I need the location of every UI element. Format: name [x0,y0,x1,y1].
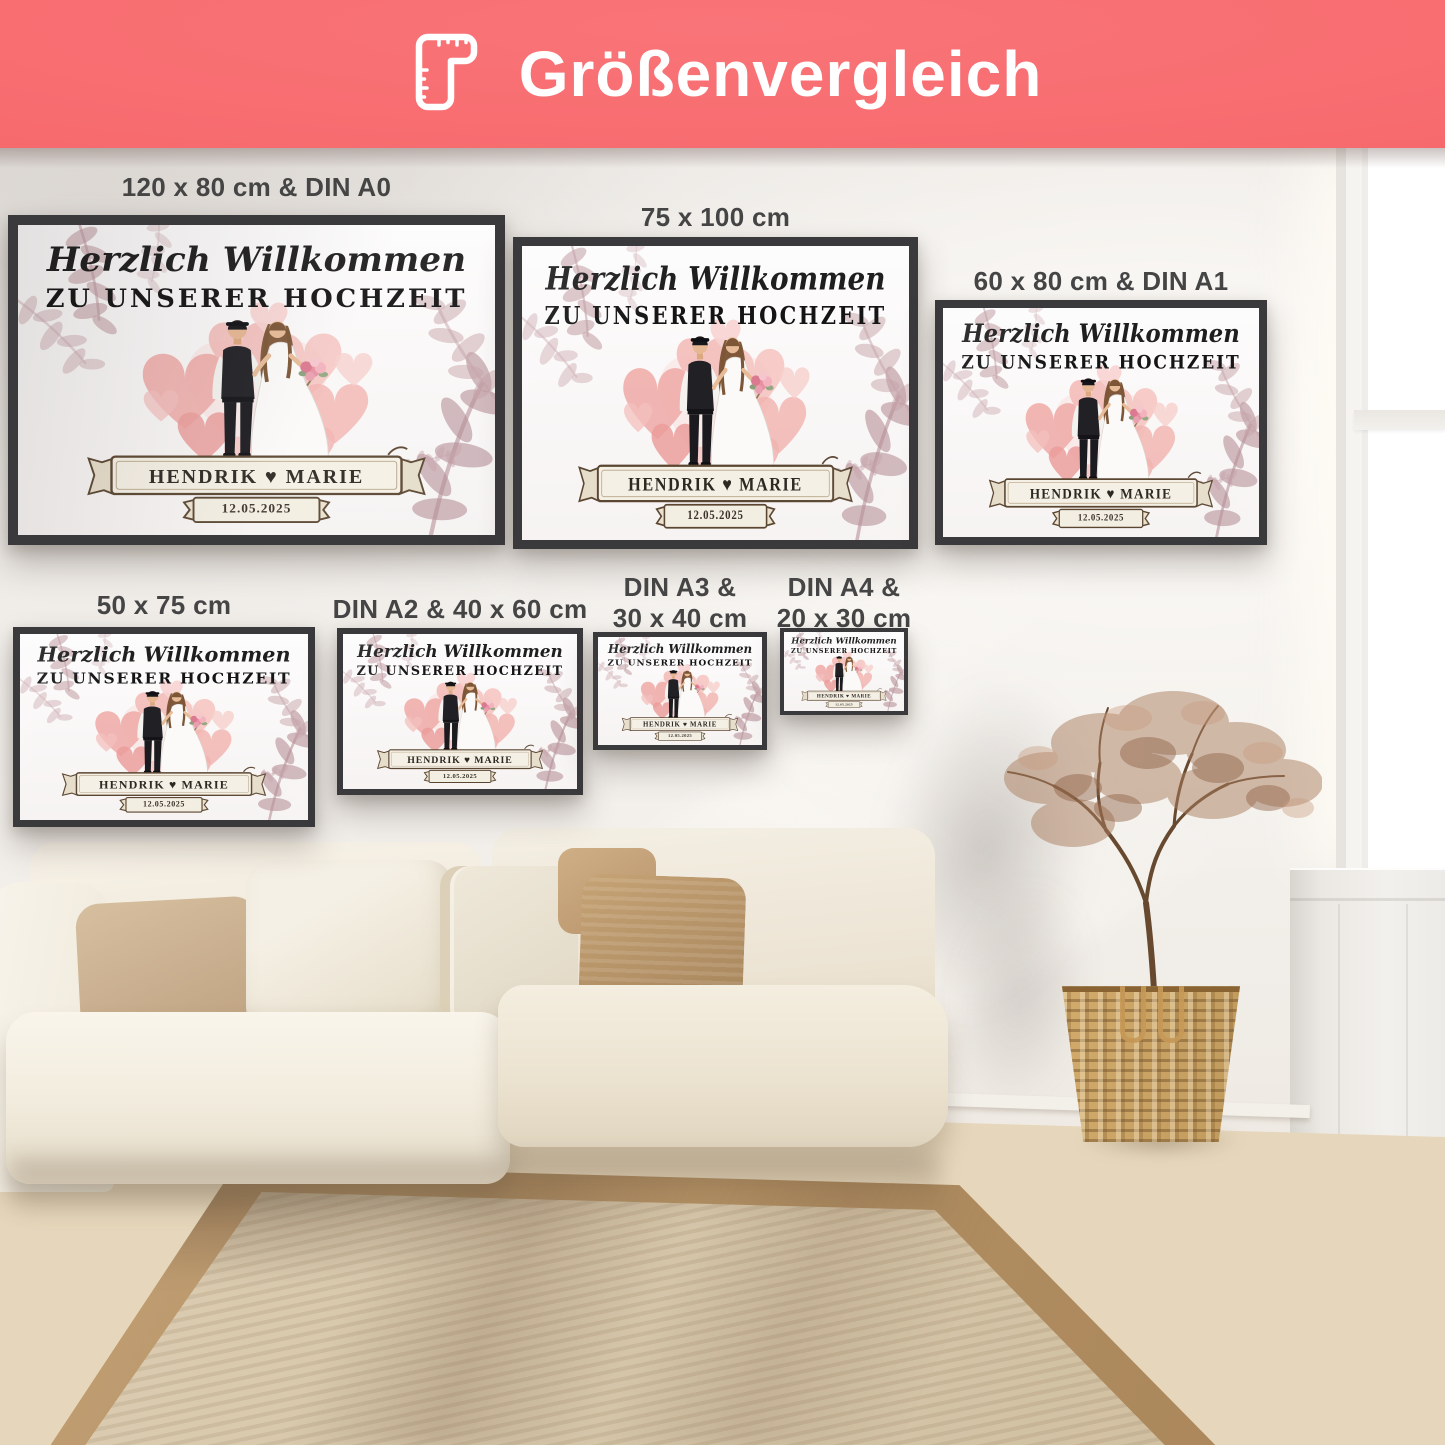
poster-size-label-line: 120 x 80 cm & DIN A0 [122,172,392,203]
poster-frame: Herzlich Willkommen ZU UNSERER HOCHZEIT … [8,215,505,545]
poster-frame: Herzlich Willkommen ZU UNSERER HOCHZEIT … [513,237,918,549]
poster-size-label-line: DIN A3 & [613,572,748,603]
poster-date: 12.05.2025 [192,499,322,521]
wicker-basket [1062,978,1240,1142]
poster-names: HENDRIK ♥ MARIE [118,459,395,493]
poster-main-title: ZU UNSERER HOCHZEIT [20,670,308,687]
window [1336,148,1445,872]
wedding-poster-art: Herzlich Willkommen ZU UNSERER HOCHZEIT … [784,632,904,711]
poster-script-title: Herzlich Willkommen [18,240,495,279]
page-title: Größenvergleich [519,37,1043,111]
poster-script-title: Herzlich Willkommen [20,643,308,667]
poster-frame: Herzlich Willkommen ZU UNSERER HOCHZEIT … [593,632,767,750]
wedding-poster-art: Herzlich Willkommen ZU UNSERER HOCHZEIT … [522,246,909,540]
poster-size-label: 120 x 80 cm & DIN A0 [122,172,392,203]
poster-frame: Herzlich Willkommen ZU UNSERER HOCHZEIT … [337,628,583,795]
poster-main-title: ZU UNSERER HOCHZEIT [598,658,762,668]
poster-size-label-line: 30 x 40 cm [613,603,748,634]
poster-script-title: Herzlich Willkommen [598,642,762,656]
ruler-icon [403,28,491,116]
poster-size-label: 60 x 80 cm & DIN A1 [974,266,1229,297]
poster-date: 12.05.2025 [1058,510,1144,527]
poster-names: HENDRIK ♥ MARIE [603,468,827,500]
poster-names: HENDRIK ♥ MARIE [392,751,528,768]
poster-script-title: Herzlich Willkommen [784,636,904,646]
poster-date: 12.05.2025 [428,771,492,782]
poster-size-label-line: DIN A4 & [777,572,912,603]
wedding-poster-art: Herzlich Willkommen ZU UNSERER HOCHZEIT … [343,634,577,789]
poster-size-label: DIN A2 & 40 x 60 cm [333,594,588,625]
poster-size-label: 75 x 100 cm [641,202,790,233]
poster-script-title: Herzlich Willkommen [522,260,909,297]
poster-names: HENDRIK ♥ MARIE [632,719,727,731]
poster-size-label-line: 50 x 75 cm [97,590,232,621]
poster-date: 12.05.2025 [125,798,203,811]
banner-shadow [0,148,1445,168]
poster-main-title: ZU UNSERER HOCHZEIT [522,303,909,330]
poster-size-label: DIN A4 &20 x 30 cm [777,572,912,634]
poster-date: 12.05.2025 [828,702,861,708]
dried-plant [978,658,1322,992]
wedding-poster-art: Herzlich Willkommen ZU UNSERER HOCHZEIT … [18,225,495,535]
poster-script-title: Herzlich Willkommen [343,641,577,661]
poster-frame: Herzlich Willkommen ZU UNSERER HOCHZEIT … [780,628,908,715]
poster-frame: Herzlich Willkommen ZU UNSERER HOCHZEIT … [13,627,315,827]
poster-size-label: DIN A3 &30 x 40 cm [613,572,748,634]
wedding-poster-art: Herzlich Willkommen ZU UNSERER HOCHZEIT … [943,308,1259,537]
window-frame [1362,148,1368,872]
poster-frame: Herzlich Willkommen ZU UNSERER HOCHZEIT … [935,300,1267,545]
sofa-seat-cushion [498,985,948,1147]
poster-names: HENDRIK ♥ MARIE [80,775,247,795]
poster-main-title: ZU UNSERER HOCHZEIT [784,647,904,654]
poster-names: HENDRIK ♥ MARIE [809,692,879,701]
wedding-poster-art: Herzlich Willkommen ZU UNSERER HOCHZEIT … [598,637,762,745]
pillow [246,860,454,1034]
poster-main-title: ZU UNSERER HOCHZEIT [943,352,1259,373]
poster-size-label-line: 75 x 100 cm [641,202,790,233]
poster-main-title: ZU UNSERER HOCHZEIT [18,285,495,314]
sofa-shadow [10,1158,940,1214]
poster-script-title: Herzlich Willkommen [943,319,1259,348]
room-scene: Größenvergleich 120 x 80 cm & DIN A0 [0,0,1445,1445]
poster-size-label: 50 x 75 cm [97,590,232,621]
poster-date: 12.05.2025 [658,732,703,740]
sofa [0,820,960,1200]
poster-size-label-line: DIN A2 & 40 x 60 cm [333,594,588,625]
window-mullion [1354,410,1445,430]
wedding-poster-art: Herzlich Willkommen ZU UNSERER HOCHZEIT … [20,634,308,820]
poster-names: HENDRIK ♥ MARIE [1009,481,1192,506]
plant-foliage [1004,691,1322,847]
size-comparison-banner: Größenvergleich [0,0,1445,148]
poster-date: 12.05.2025 [663,506,768,527]
poster-main-title: ZU UNSERER HOCHZEIT [343,664,577,678]
poster-size-label-line: 60 x 80 cm & DIN A1 [974,266,1229,297]
